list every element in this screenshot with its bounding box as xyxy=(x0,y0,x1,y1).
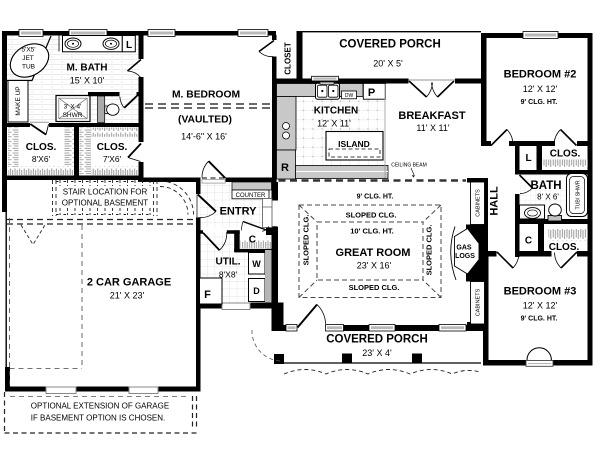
svg-text:5'X5': 5'X5' xyxy=(21,47,35,54)
svg-text:P: P xyxy=(368,87,375,99)
svg-text:DW: DW xyxy=(345,93,354,99)
svg-text:COVERED PORCH: COVERED PORCH xyxy=(326,334,428,346)
svg-text:L: L xyxy=(525,153,531,164)
svg-text:SLOPED CLG.: SLOPED CLG. xyxy=(346,211,397,220)
svg-text:IF BASEMENT OPTION IS CHOSEN.: IF BASEMENT OPTION IS CHOSEN. xyxy=(31,414,166,423)
svg-text:SLOPED CLG.: SLOPED CLG. xyxy=(349,283,400,292)
svg-text:TUB/ SHWR: TUB/ SHWR xyxy=(576,180,582,209)
svg-text:23' X 16': 23' X 16' xyxy=(357,261,392,271)
svg-text:GREAT ROOM: GREAT ROOM xyxy=(336,247,411,259)
svg-text:COVERED PORCH: COVERED PORCH xyxy=(339,39,441,51)
svg-text:OPTIONAL EXTENSION OF GARAGE: OPTIONAL EXTENSION OF GARAGE xyxy=(31,402,169,411)
svg-text:(VAULTED): (VAULTED) xyxy=(178,115,232,126)
svg-text:SLOPED CLG.: SLOPED CLG. xyxy=(425,225,434,276)
svg-text:9' CLG. HT.: 9' CLG. HT. xyxy=(357,194,394,201)
svg-text:9' CLG. HT.: 9' CLG. HT. xyxy=(521,99,558,106)
svg-text:7'X6': 7'X6' xyxy=(103,154,122,164)
svg-text:COUNTER: COUNTER xyxy=(236,193,266,199)
svg-text:CLOS.: CLOS. xyxy=(549,242,580,253)
svg-text:KITCHEN: KITCHEN xyxy=(314,106,358,117)
svg-text:10' CLG. HT.: 10' CLG. HT. xyxy=(350,227,393,236)
svg-text:LOGS: LOGS xyxy=(455,253,475,260)
svg-text:CEILING BEAM: CEILING BEAM xyxy=(391,163,427,169)
svg-text:CABINETS: CABINETS xyxy=(476,288,482,316)
svg-text:12' X 12': 12' X 12' xyxy=(523,301,558,311)
svg-text:R: R xyxy=(281,162,289,174)
svg-text:9' CLG. HT.: 9' CLG. HT. xyxy=(521,316,558,323)
svg-text:BEDROOM #2: BEDROOM #2 xyxy=(504,69,577,81)
svg-text:21' X 23': 21' X 23' xyxy=(110,291,145,301)
svg-text:BEDROOM #3: BEDROOM #3 xyxy=(504,286,577,298)
svg-text:ISLAND: ISLAND xyxy=(338,139,370,149)
svg-text:11' X 11': 11' X 11' xyxy=(416,123,449,133)
svg-text:8' X 6': 8' X 6' xyxy=(537,193,559,202)
svg-text:15' X 10': 15' X 10' xyxy=(70,76,105,86)
svg-text:SHWR: SHWR xyxy=(63,112,83,119)
svg-text:M. BEDROOM: M. BEDROOM xyxy=(172,90,240,101)
svg-text:STAIR LOCATION FOR: STAIR LOCATION FOR xyxy=(63,188,148,197)
svg-text:12' X 12': 12' X 12' xyxy=(523,84,558,94)
svg-text:C: C xyxy=(249,234,256,245)
svg-text:JET: JET xyxy=(22,55,34,62)
svg-text:3' X 4': 3' X 4' xyxy=(64,104,82,111)
svg-text:CLOS.: CLOS. xyxy=(26,142,57,153)
svg-text:SLOPED CLG.: SLOPED CLG. xyxy=(302,215,311,266)
svg-text:D: D xyxy=(253,286,260,296)
svg-text:12' X 11': 12' X 11' xyxy=(317,119,351,129)
svg-text:CLOS.: CLOS. xyxy=(550,149,581,160)
svg-text:GAS: GAS xyxy=(456,245,472,252)
svg-text:20' X 5': 20' X 5' xyxy=(373,59,403,69)
svg-text:OPTIONAL BASEMENT: OPTIONAL BASEMENT xyxy=(62,199,149,208)
svg-text:W: W xyxy=(252,259,261,269)
svg-text:C: C xyxy=(525,236,532,247)
svg-text:L: L xyxy=(126,40,132,51)
svg-text:BREAKFAST: BREAKFAST xyxy=(398,110,466,122)
svg-text:CLOS.: CLOS. xyxy=(97,142,128,153)
svg-text:F: F xyxy=(204,289,211,301)
svg-text:BATH: BATH xyxy=(530,180,561,192)
svg-text:HALL: HALL xyxy=(489,186,501,216)
svg-text:14'-6" X 16': 14'-6" X 16' xyxy=(181,132,227,142)
svg-text:CABINETS: CABINETS xyxy=(476,189,482,217)
svg-text:ENTRY: ENTRY xyxy=(220,206,258,218)
svg-text:UTIL.: UTIL. xyxy=(216,257,241,268)
svg-text:23' X 4': 23' X 4' xyxy=(362,348,392,358)
svg-text:8'X6': 8'X6' xyxy=(32,154,51,164)
svg-text:M. BATH: M. BATH xyxy=(67,63,108,74)
svg-text:2 CAR GARAGE: 2 CAR GARAGE xyxy=(87,277,171,289)
svg-text:CLOSET: CLOSET xyxy=(284,42,293,75)
svg-text:TUB: TUB xyxy=(22,64,35,71)
svg-text:MAKE UP: MAKE UP xyxy=(15,86,22,115)
